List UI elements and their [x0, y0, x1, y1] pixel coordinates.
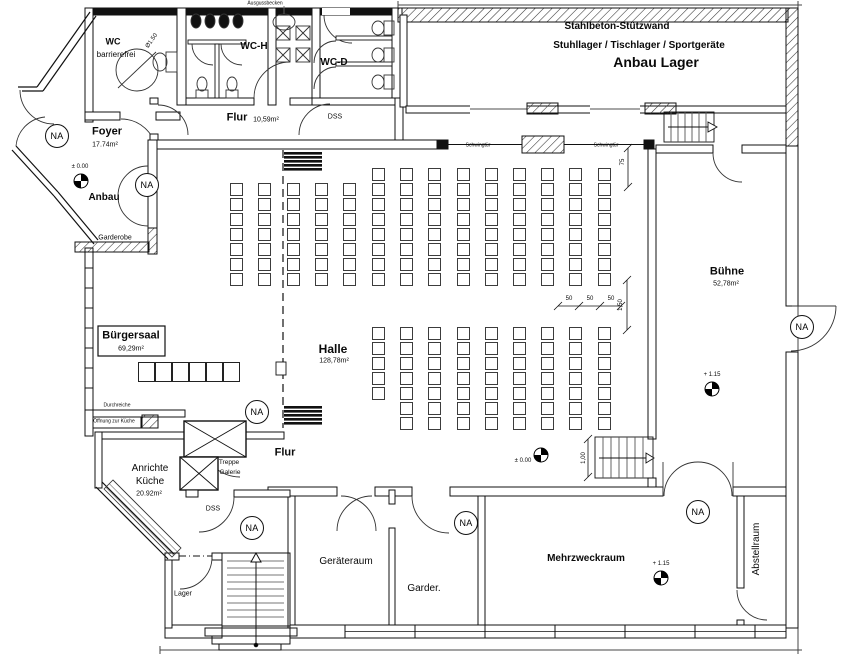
movable-partition	[276, 150, 322, 428]
door-arc	[180, 557, 212, 589]
door-arc	[337, 496, 372, 531]
storage-stairs	[664, 112, 717, 142]
toilet-icon	[166, 52, 177, 72]
door-arc	[713, 153, 742, 182]
urinal-icon	[219, 14, 229, 28]
door-arc	[199, 497, 234, 532]
urinal-icon	[205, 14, 215, 28]
kitchen-south-walls	[186, 490, 290, 532]
door-arc	[192, 44, 213, 65]
door-arc	[221, 44, 242, 65]
washbasin-grid	[276, 26, 310, 62]
urinal-icon	[233, 14, 243, 28]
dimension-lines	[554, 144, 632, 481]
floor-plan-linework	[0, 0, 845, 667]
gallery-stair-structure	[180, 421, 246, 490]
door-arc	[341, 496, 376, 531]
hall-south-wall	[268, 462, 786, 533]
stage-stairs	[595, 437, 654, 478]
wc-fixtures	[116, 6, 394, 155]
south-rooms-walls	[288, 490, 767, 628]
double-door-arc	[664, 462, 698, 496]
double-door-arc	[698, 462, 732, 496]
door-arc	[737, 590, 767, 620]
storage-walls	[398, 8, 798, 146]
door-arc	[118, 166, 148, 196]
west-side-walls	[75, 140, 284, 488]
east-wall	[786, 146, 836, 628]
door-arc	[299, 104, 330, 135]
room-label-box	[98, 326, 165, 356]
urinal-icon	[191, 14, 201, 28]
kitchen-diagonal	[96, 480, 181, 559]
kitchen-counter	[104, 480, 181, 557]
floor-plan: NANANANANANANA AusgussbeckenWCbarrierefr…	[0, 0, 845, 667]
door-arc	[412, 496, 449, 533]
stage-walls	[648, 145, 786, 487]
door-arc	[118, 196, 148, 226]
